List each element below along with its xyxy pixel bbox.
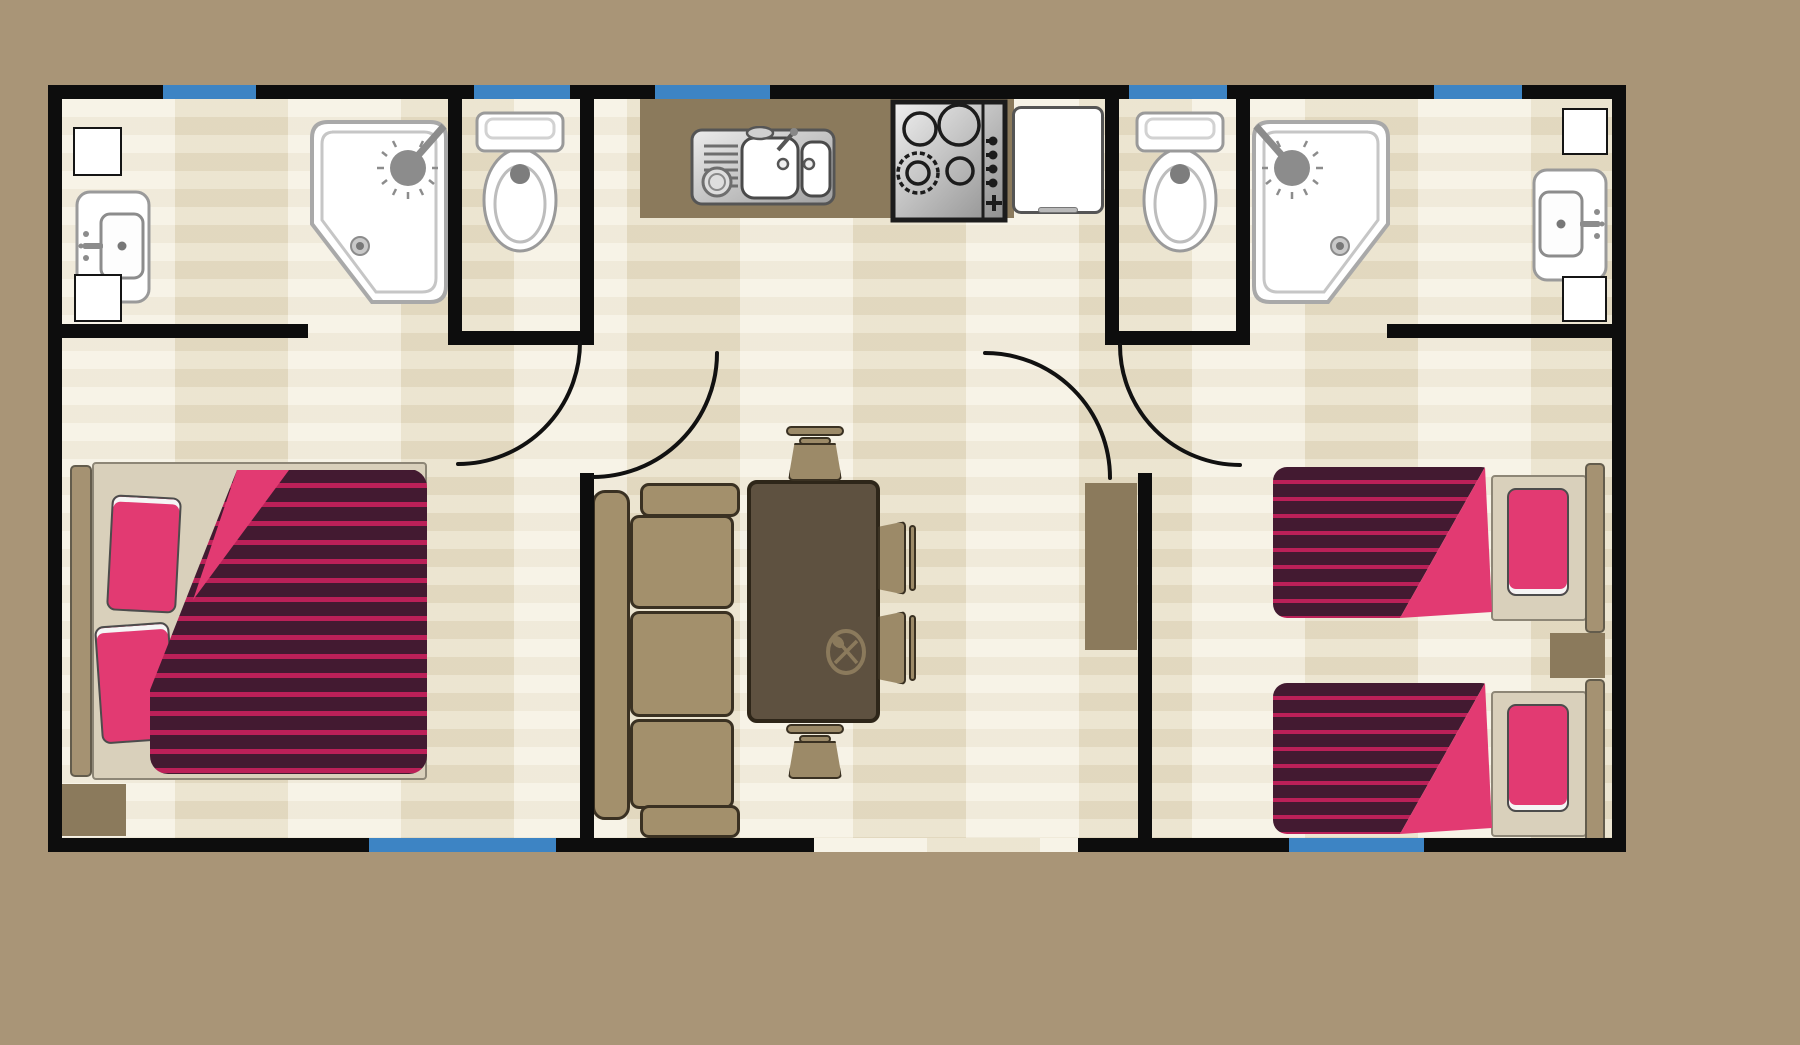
wall-wc-right-west	[1105, 99, 1119, 345]
toilet-icon	[1134, 110, 1226, 255]
single-bed-bottom	[1273, 678, 1605, 850]
chair-bottom	[783, 722, 847, 779]
cutlery-icon	[825, 628, 867, 676]
wall-outer-left	[48, 85, 62, 852]
sofa-armrest	[640, 483, 740, 517]
wardrobe	[1085, 483, 1137, 650]
kitchen-sink	[690, 126, 836, 208]
cabinet-bottom-left	[74, 274, 122, 322]
headboard	[1585, 463, 1605, 633]
window-top-3	[655, 85, 770, 99]
toilet-right	[1134, 110, 1226, 255]
shower-right	[1250, 118, 1392, 306]
sofa-armrest	[640, 805, 740, 838]
sofa-back	[592, 490, 630, 820]
headboard	[70, 465, 92, 777]
cabinet-bottom-right	[1562, 276, 1607, 322]
wall-wc-left-bottom	[448, 331, 580, 345]
wall-outer-right	[1612, 85, 1626, 852]
chair-seat	[788, 741, 842, 779]
dining-table	[747, 480, 880, 723]
floor-entrance-opening	[814, 838, 1078, 852]
duvet	[1273, 467, 1495, 618]
window-top-5	[1434, 85, 1522, 99]
wall-outer-top	[48, 85, 1626, 99]
stove	[890, 99, 1008, 223]
mat-bottom-left	[62, 784, 126, 836]
toilet-left	[474, 110, 566, 255]
headboard	[1585, 679, 1605, 849]
wall-divider-right-bottom	[1138, 473, 1152, 838]
cabinet-top-left	[73, 127, 122, 176]
window-bottom-1	[369, 838, 556, 852]
plate-icon	[703, 168, 731, 196]
basin-large-icon	[742, 138, 798, 198]
sofa	[592, 483, 740, 838]
chair-seat	[788, 443, 842, 481]
chair-top	[783, 424, 847, 481]
shower-left	[308, 118, 450, 306]
chair-backrest	[909, 615, 916, 681]
duvet	[1273, 683, 1495, 834]
window-top-4	[1129, 85, 1227, 99]
pillow	[1507, 488, 1569, 596]
window-top-2	[474, 85, 570, 99]
wall-divider-left-top	[580, 99, 594, 345]
wall-bathroom-left-bottom	[62, 324, 308, 338]
chair-right-2	[878, 608, 920, 688]
chair-seat	[878, 521, 906, 595]
wall-divider-left-bottom	[580, 473, 594, 838]
wall-bathroom-right-bottom	[1387, 324, 1612, 338]
washbasin-right	[1532, 168, 1608, 282]
washbasin-icon	[1532, 168, 1608, 282]
fridge	[1012, 106, 1104, 214]
pillow	[1507, 704, 1569, 812]
shower-tray-icon	[308, 118, 450, 306]
chair-backrest	[909, 525, 916, 591]
sofa-cushion	[630, 515, 734, 609]
cabinet-top-right	[1562, 108, 1608, 155]
window-bottom-2	[1289, 838, 1424, 852]
shower-tray-icon	[1250, 118, 1392, 306]
single-bed-top	[1273, 462, 1605, 634]
kitchen-sink-icon	[690, 126, 836, 208]
floor-plan	[0, 0, 1800, 1045]
sofa-cushion	[630, 719, 734, 809]
shower-head-icon	[390, 150, 426, 186]
faucet-icon	[747, 127, 773, 139]
chair-seat	[878, 611, 906, 685]
wall-wc-left-west	[448, 99, 462, 345]
chair-backrest	[786, 426, 844, 436]
duvet	[150, 469, 427, 774]
duvet-cover	[150, 469, 427, 774]
toilet-icon	[474, 110, 566, 255]
chair-backrest	[786, 724, 844, 734]
double-bed	[70, 462, 427, 780]
shower-head-icon	[1274, 150, 1310, 186]
wall-wc-right-east	[1236, 99, 1250, 345]
nightstand	[1550, 633, 1605, 678]
window-top-1	[163, 85, 256, 99]
fridge-door-line	[1038, 207, 1078, 213]
wall-wc-right-bottom	[1119, 331, 1250, 345]
chair-right-1	[878, 518, 920, 598]
sofa-cushion	[630, 611, 734, 717]
stove-icon	[890, 99, 1008, 223]
